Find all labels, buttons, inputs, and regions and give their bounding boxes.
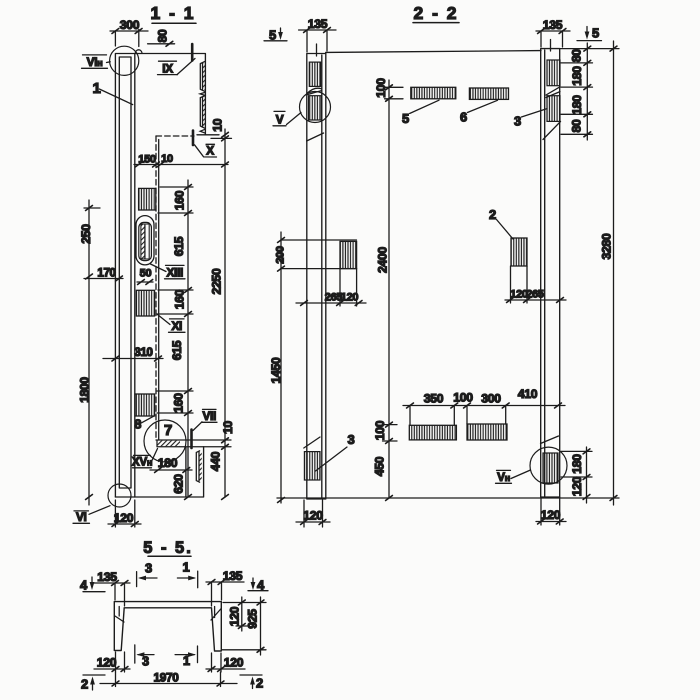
svg-text:VI: VI xyxy=(76,510,87,524)
svg-text:300: 300 xyxy=(481,392,501,406)
svg-text:3: 3 xyxy=(514,114,521,129)
svg-text:135: 135 xyxy=(543,18,563,32)
svg-text:6: 6 xyxy=(460,110,467,125)
svg-text:160: 160 xyxy=(172,393,186,413)
svg-text:1450: 1450 xyxy=(269,357,283,383)
svg-text:10: 10 xyxy=(211,118,225,131)
svg-text:VIн: VIн xyxy=(87,55,103,69)
svg-text:5: 5 xyxy=(592,26,599,41)
svg-text:V: V xyxy=(276,113,284,127)
svg-text:8: 8 xyxy=(134,418,141,432)
svg-text:250: 250 xyxy=(79,224,93,244)
svg-text:10: 10 xyxy=(221,421,235,434)
svg-text:120: 120 xyxy=(228,606,242,626)
svg-text:10: 10 xyxy=(161,153,173,165)
svg-text:120: 120 xyxy=(341,292,359,304)
svg-text:265: 265 xyxy=(325,292,343,304)
svg-text:1800: 1800 xyxy=(78,377,92,403)
svg-text:3280: 3280 xyxy=(600,233,614,259)
svg-text:80: 80 xyxy=(156,29,170,42)
svg-text:3: 3 xyxy=(348,432,355,447)
svg-text:2250: 2250 xyxy=(210,268,224,294)
svg-text:160: 160 xyxy=(173,289,187,309)
svg-text:200: 200 xyxy=(275,246,287,264)
svg-text:120: 120 xyxy=(97,656,117,670)
svg-text:615: 615 xyxy=(172,236,186,256)
svg-text:2400: 2400 xyxy=(376,247,390,273)
svg-text:350: 350 xyxy=(424,392,444,406)
svg-text:50: 50 xyxy=(140,268,152,280)
svg-text:180: 180 xyxy=(570,66,584,86)
svg-text:XIII: XIII xyxy=(166,266,183,280)
svg-text:100: 100 xyxy=(374,78,388,98)
svg-text:3: 3 xyxy=(145,561,152,576)
svg-text:180: 180 xyxy=(570,454,584,474)
svg-text:X: X xyxy=(206,144,214,158)
svg-text:120: 120 xyxy=(224,656,244,670)
svg-text:120: 120 xyxy=(541,508,561,522)
svg-text:1 - 1: 1 - 1 xyxy=(150,3,195,23)
svg-text:2 - 2: 2 - 2 xyxy=(413,3,458,23)
svg-text:440: 440 xyxy=(209,451,223,471)
svg-text:80: 80 xyxy=(570,119,584,132)
svg-text:620: 620 xyxy=(172,474,186,494)
svg-text:2: 2 xyxy=(81,677,88,692)
svg-text:120: 120 xyxy=(510,289,528,301)
svg-text:1970: 1970 xyxy=(153,671,179,685)
svg-text:4: 4 xyxy=(80,578,88,593)
svg-text:160: 160 xyxy=(173,190,187,210)
svg-text:450: 450 xyxy=(373,456,387,476)
svg-text:120: 120 xyxy=(114,511,134,525)
svg-text:120: 120 xyxy=(570,476,584,496)
svg-text:100: 100 xyxy=(453,391,473,405)
svg-text:Vн: Vн xyxy=(497,470,510,484)
svg-text:3: 3 xyxy=(142,655,149,669)
svg-text:5: 5 xyxy=(402,111,409,126)
svg-text:80: 80 xyxy=(570,49,584,62)
svg-text:5 - 5.: 5 - 5. xyxy=(143,539,193,557)
svg-text:2: 2 xyxy=(256,676,263,691)
svg-text:410: 410 xyxy=(518,387,538,401)
svg-text:135: 135 xyxy=(97,570,117,584)
svg-text:150: 150 xyxy=(138,153,156,165)
svg-text:615: 615 xyxy=(170,340,184,360)
svg-text:265: 265 xyxy=(526,289,544,301)
svg-text:2: 2 xyxy=(489,207,496,222)
svg-text:135: 135 xyxy=(223,569,243,583)
svg-text:180: 180 xyxy=(570,95,584,115)
svg-text:925: 925 xyxy=(246,609,260,629)
svg-text:300: 300 xyxy=(120,18,140,32)
svg-text:100: 100 xyxy=(373,420,387,440)
svg-text:120: 120 xyxy=(303,509,323,523)
svg-text:1: 1 xyxy=(183,654,190,668)
svg-text:XI: XI xyxy=(171,319,182,333)
svg-text:4: 4 xyxy=(257,578,265,593)
svg-text:5: 5 xyxy=(269,28,276,43)
svg-text:7: 7 xyxy=(164,422,172,439)
svg-text:VII: VII xyxy=(202,409,216,423)
svg-text:310: 310 xyxy=(134,347,152,359)
svg-text:XVн: XVн xyxy=(132,455,152,469)
svg-text:1: 1 xyxy=(183,560,190,575)
svg-text:135: 135 xyxy=(308,17,328,31)
svg-text:IX: IX xyxy=(162,61,173,75)
svg-text:170: 170 xyxy=(97,267,115,279)
svg-text:180: 180 xyxy=(158,456,178,470)
